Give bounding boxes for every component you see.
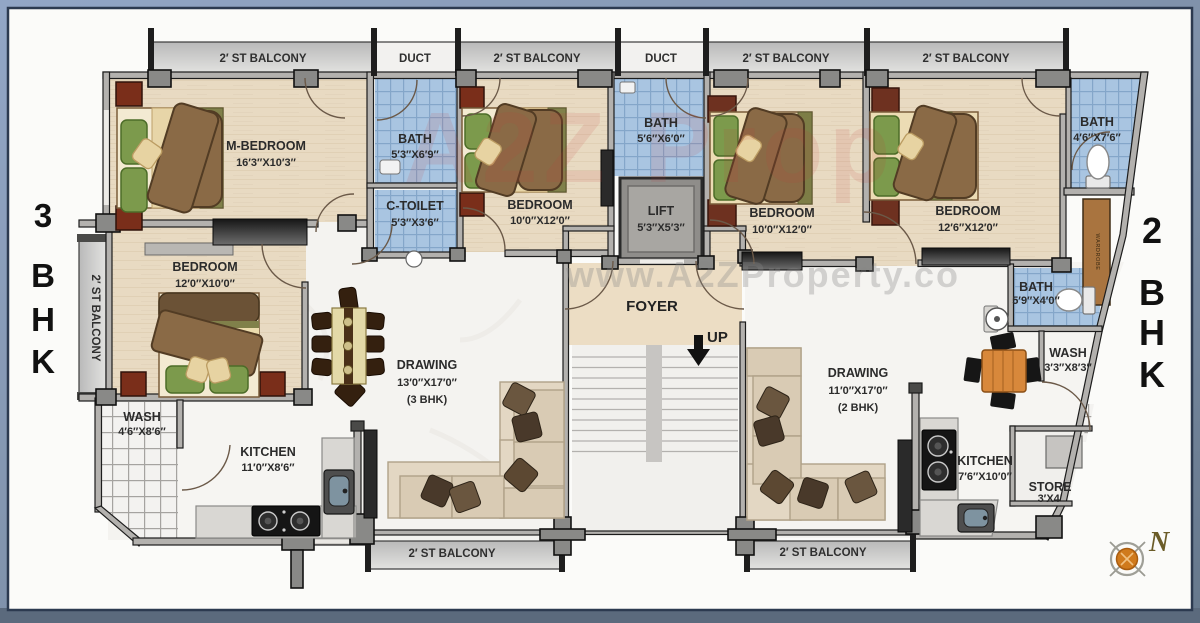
svg-text:10′0″X12′0″: 10′0″X12′0″	[510, 215, 571, 227]
svg-text:5′3″X6′9″: 5′3″X6′9″	[391, 149, 439, 161]
svg-text:BEDROOM: BEDROOM	[749, 206, 814, 220]
svg-text:BATH: BATH	[644, 116, 678, 130]
svg-text:12′6″X12′0″: 12′6″X12′0″	[938, 222, 999, 234]
svg-text:5′3″X5′3″: 5′3″X5′3″	[637, 222, 685, 234]
svg-text:B: B	[1139, 272, 1165, 313]
svg-text:FOYER: FOYER	[626, 298, 678, 315]
svg-text:DRAWING: DRAWING	[397, 358, 457, 372]
svg-text:BATH: BATH	[1080, 115, 1114, 129]
svg-text:WARDROBE: WARDROBE	[1094, 234, 1100, 271]
svg-text:STORE: STORE	[1029, 480, 1072, 494]
svg-text:11′0″X8′6″: 11′0″X8′6″	[241, 462, 295, 474]
svg-text:11′0″X17′0″: 11′0″X17′0″	[828, 385, 888, 397]
svg-text:2′ ST BALCONY: 2′ ST BALCONY	[779, 547, 866, 559]
svg-text:BATH: BATH	[1019, 280, 1053, 294]
svg-text:2′ ST BALCONY: 2′ ST BALCONY	[89, 274, 101, 361]
svg-text:N: N	[1148, 527, 1171, 558]
svg-text:2′ ST BALCONY: 2′ ST BALCONY	[742, 53, 829, 65]
svg-text:3: 3	[34, 197, 52, 234]
svg-text:2′ ST BALCONY: 2′ ST BALCONY	[493, 53, 580, 65]
svg-text:WASH: WASH	[123, 410, 161, 424]
svg-text:7′6″X10′0″: 7′6″X10′0″	[958, 471, 1012, 483]
svg-text:4′6″X8′6″: 4′6″X8′6″	[118, 426, 166, 438]
svg-text:DRAWING: DRAWING	[828, 366, 888, 380]
svg-text:www.A2ZProperty.co: www.A2ZProperty.co	[565, 254, 960, 295]
svg-text:B: B	[31, 257, 55, 294]
svg-text:3′3″X8′3″: 3′3″X8′3″	[1044, 362, 1092, 374]
svg-text:UP: UP	[707, 329, 728, 346]
svg-text:BEDROOM: BEDROOM	[935, 204, 1000, 218]
svg-text:13′0″X17′0″: 13′0″X17′0″	[397, 377, 458, 389]
svg-text:4′6″X7′6″: 4′6″X7′6″	[1073, 132, 1121, 144]
svg-text:LIFT: LIFT	[648, 204, 675, 218]
svg-text:M-BEDROOM: M-BEDROOM	[226, 139, 306, 153]
svg-text:5′3″X3′6″: 5′3″X3′6″	[391, 217, 439, 229]
svg-text:A2Z Prop: A2Z Prop	[404, 92, 896, 204]
svg-text:5′9″X4′0″: 5′9″X4′0″	[1012, 295, 1060, 307]
svg-text:K: K	[31, 343, 55, 380]
svg-text:DUCT: DUCT	[645, 53, 677, 65]
svg-text:BEDROOM: BEDROOM	[507, 198, 572, 212]
svg-text:2: 2	[1142, 210, 1162, 251]
svg-text:12′0″X10′0″: 12′0″X10′0″	[175, 278, 236, 290]
svg-text:16′3″X10′3″: 16′3″X10′3″	[236, 157, 297, 169]
svg-text:WASH: WASH	[1049, 346, 1087, 360]
svg-text:BATH: BATH	[398, 132, 432, 146]
svg-text:H: H	[1139, 312, 1165, 353]
svg-text:K: K	[1139, 354, 1165, 395]
svg-text:BEDROOM: BEDROOM	[172, 260, 237, 274]
svg-text:(2 BHK): (2 BHK)	[838, 402, 879, 414]
svg-text:10′0″X12′0″: 10′0″X12′0″	[752, 224, 813, 236]
svg-text:C-TOILET: C-TOILET	[386, 199, 444, 213]
svg-text:5′6″X6′0″: 5′6″X6′0″	[637, 133, 685, 145]
svg-text:2′ ST BALCONY: 2′ ST BALCONY	[219, 53, 306, 65]
svg-text:2′ ST BALCONY: 2′ ST BALCONY	[922, 53, 1009, 65]
svg-text:(3 BHK): (3 BHK)	[407, 394, 448, 406]
svg-text:KITCHEN: KITCHEN	[957, 454, 1013, 468]
svg-text:2′ ST BALCONY: 2′ ST BALCONY	[408, 548, 495, 560]
svg-text:KITCHEN: KITCHEN	[240, 445, 296, 459]
svg-text:3′X4′: 3′X4′	[1038, 493, 1063, 505]
svg-text:DUCT: DUCT	[399, 53, 431, 65]
svg-text:H: H	[31, 301, 55, 338]
